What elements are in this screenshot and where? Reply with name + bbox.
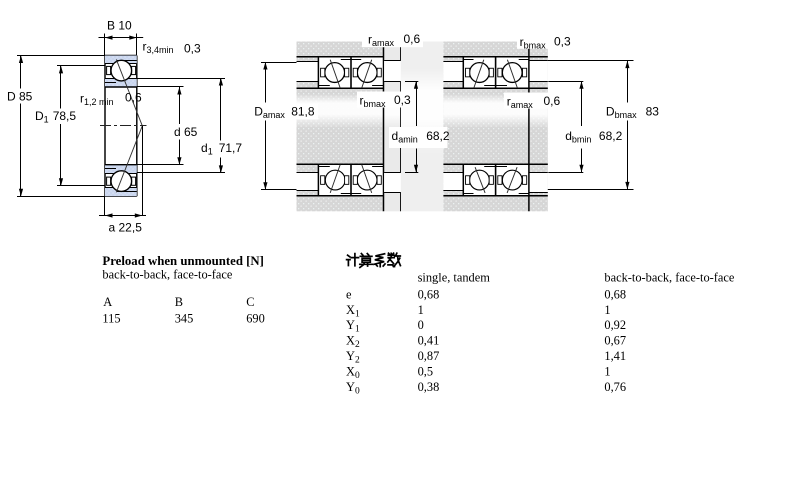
svg-text:0,6: 0,6 xyxy=(125,91,142,105)
svg-text:0,92: 0,92 xyxy=(604,318,626,332)
svg-text:0,67: 0,67 xyxy=(604,334,626,348)
svg-text:0,41: 0,41 xyxy=(418,334,440,348)
svg-text:d 65: d 65 xyxy=(174,125,198,139)
svg-text:0,3: 0,3 xyxy=(184,42,201,56)
svg-text:0,68: 0,68 xyxy=(418,287,440,301)
svg-text:single, tandem: single, tandem xyxy=(418,270,491,284)
svg-text:0: 0 xyxy=(418,318,424,332)
svg-text:115: 115 xyxy=(102,312,120,326)
svg-text:345: 345 xyxy=(175,312,194,326)
svg-text:back-to-back, face-to-face: back-to-back, face-to-face xyxy=(604,270,735,284)
svg-text:B: B xyxy=(175,295,183,309)
svg-text:0,3: 0,3 xyxy=(394,93,411,107)
svg-text:0,5: 0,5 xyxy=(418,365,434,379)
svg-text:0,68: 0,68 xyxy=(604,287,626,301)
svg-text:0,38: 0,38 xyxy=(418,380,440,394)
svg-text:0,87: 0,87 xyxy=(418,349,440,363)
svg-text:1,41: 1,41 xyxy=(604,349,626,363)
svg-text:0,76: 0,76 xyxy=(604,380,626,394)
svg-text:1: 1 xyxy=(418,303,424,317)
svg-text:690: 690 xyxy=(246,312,265,326)
svg-text:d171,7: d171,7 xyxy=(201,141,242,157)
svg-text:e: e xyxy=(346,287,352,301)
svg-text:A: A xyxy=(103,295,112,309)
svg-text:1: 1 xyxy=(604,365,610,379)
svg-text:a 22,5: a 22,5 xyxy=(109,221,143,235)
svg-text:D178,5: D178,5 xyxy=(35,109,76,125)
svg-text:0,6: 0,6 xyxy=(404,32,421,46)
svg-text:B 10: B 10 xyxy=(107,19,132,33)
svg-text:Preload when unmounted [N]: Preload when unmounted [N] xyxy=(102,254,264,268)
svg-text:0,6: 0,6 xyxy=(544,94,561,108)
svg-text:D 85: D 85 xyxy=(7,90,33,104)
svg-text:C: C xyxy=(246,295,254,309)
svg-text:1: 1 xyxy=(604,303,610,317)
svg-text:0,3: 0,3 xyxy=(554,35,571,49)
svg-text:81,8: 81,8 xyxy=(291,105,315,119)
svg-text:back-to-back, face-to-face: back-to-back, face-to-face xyxy=(102,268,233,282)
